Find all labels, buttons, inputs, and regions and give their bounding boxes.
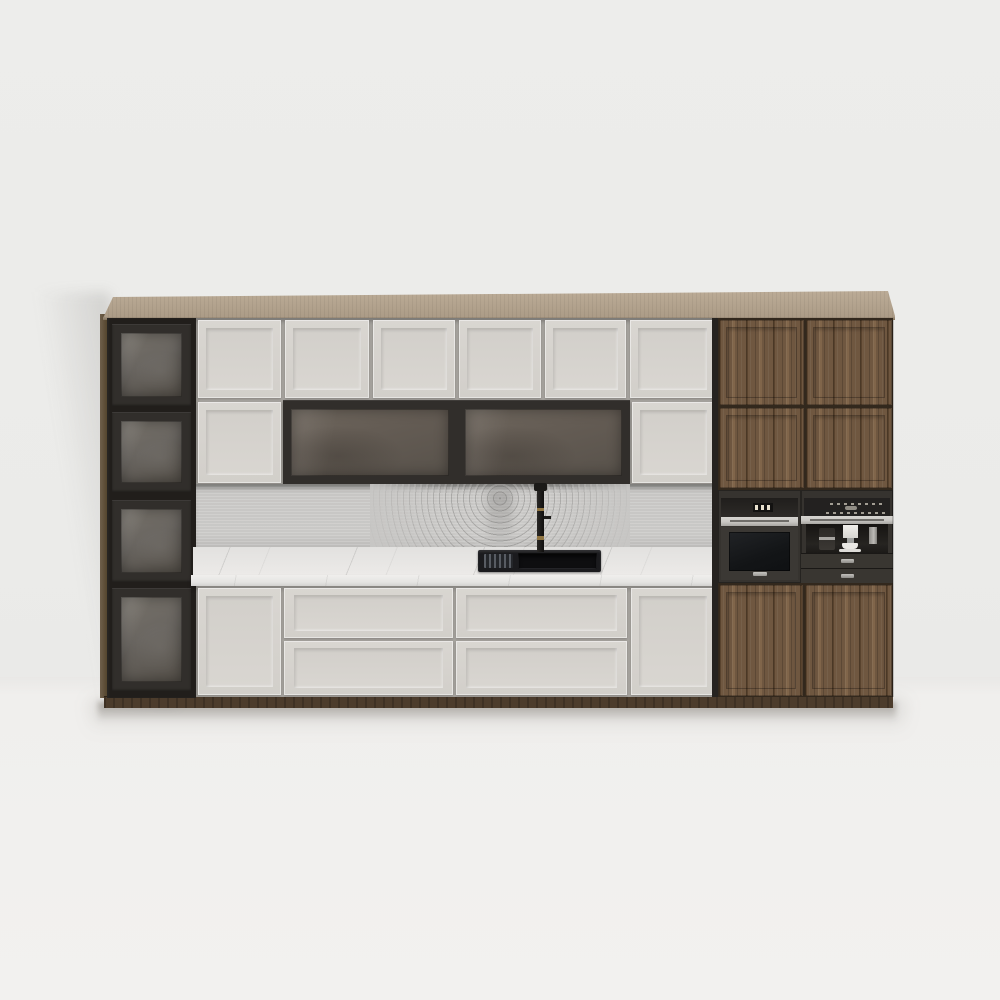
coffee-control-panel xyxy=(804,498,890,516)
coffee-trim-bar xyxy=(801,516,893,524)
drawer-b-top xyxy=(456,588,627,638)
backsplash xyxy=(196,484,716,547)
glass-door-1 xyxy=(112,324,191,406)
upper-door-4 xyxy=(459,320,541,398)
drawer-a-bottom xyxy=(284,641,453,695)
water-tank xyxy=(843,525,858,538)
smoked-glass-cabinet xyxy=(283,400,630,486)
upper-door-3 xyxy=(373,320,455,398)
oven-door xyxy=(721,527,798,580)
coffee-drawer-1 xyxy=(801,553,893,568)
coffee-icon-row-1 xyxy=(830,503,886,505)
left-glass-column xyxy=(107,318,196,698)
glass-door-2 xyxy=(112,412,191,492)
coffee-logo-badge xyxy=(845,506,857,510)
coffee-saucer xyxy=(839,549,861,552)
coffee-drawer-2 xyxy=(801,568,893,583)
brand-plaque xyxy=(753,572,767,576)
faucet-brass-band xyxy=(537,508,544,511)
mid-door-right xyxy=(632,402,715,483)
faucet-lever xyxy=(544,516,551,519)
sink-bowl xyxy=(518,553,597,569)
built-in-oven xyxy=(718,490,801,583)
countertop-surface xyxy=(193,547,718,575)
oven-handle xyxy=(721,517,798,526)
coffee-icon-row-2 xyxy=(826,512,888,514)
coffee-dispense-niche xyxy=(806,524,888,553)
upper-door-1 xyxy=(198,320,281,398)
wood-upper-door-2 xyxy=(806,320,892,405)
wood-upper-door-1 xyxy=(719,320,804,405)
cabinet-top-panel xyxy=(100,290,895,320)
cabinet-right-edge xyxy=(892,320,894,697)
glass-cabinet-door-right xyxy=(465,409,622,476)
drawer-handle xyxy=(841,559,854,563)
wood-upper-door-4 xyxy=(806,408,892,488)
oven-control-panel xyxy=(721,498,798,517)
kitchen-sink xyxy=(478,550,601,572)
coffee-grinder xyxy=(819,528,835,550)
upper-door-2 xyxy=(285,320,369,398)
faucet xyxy=(537,486,544,552)
glass-cabinet-door-left xyxy=(291,409,449,476)
glass-door-3 xyxy=(112,500,191,582)
render-stage xyxy=(0,0,1000,1000)
countertop-front-edge xyxy=(191,575,719,586)
base-door-left xyxy=(198,588,281,695)
backsplash-shading xyxy=(488,490,512,546)
toe-kick xyxy=(104,696,893,708)
drawer-b-bottom xyxy=(456,641,627,695)
dish-rack xyxy=(484,554,513,568)
oven-door-glass xyxy=(729,532,790,571)
base-door-right xyxy=(631,588,715,695)
built-in-coffee-machine xyxy=(801,490,893,583)
wood-lower-door-2 xyxy=(805,585,892,696)
faucet-brass-band xyxy=(537,536,544,540)
drawer-a-top xyxy=(284,588,453,638)
steam-wand xyxy=(869,527,877,544)
wood-upper-door-3 xyxy=(719,408,804,488)
oven-display xyxy=(753,503,773,512)
upper-door-6 xyxy=(630,320,715,398)
drawer-handle xyxy=(841,574,854,578)
wood-lower-door-1 xyxy=(719,585,803,696)
upper-door-5 xyxy=(545,320,626,398)
mid-door-left xyxy=(198,402,281,483)
glass-door-4 xyxy=(112,588,191,691)
